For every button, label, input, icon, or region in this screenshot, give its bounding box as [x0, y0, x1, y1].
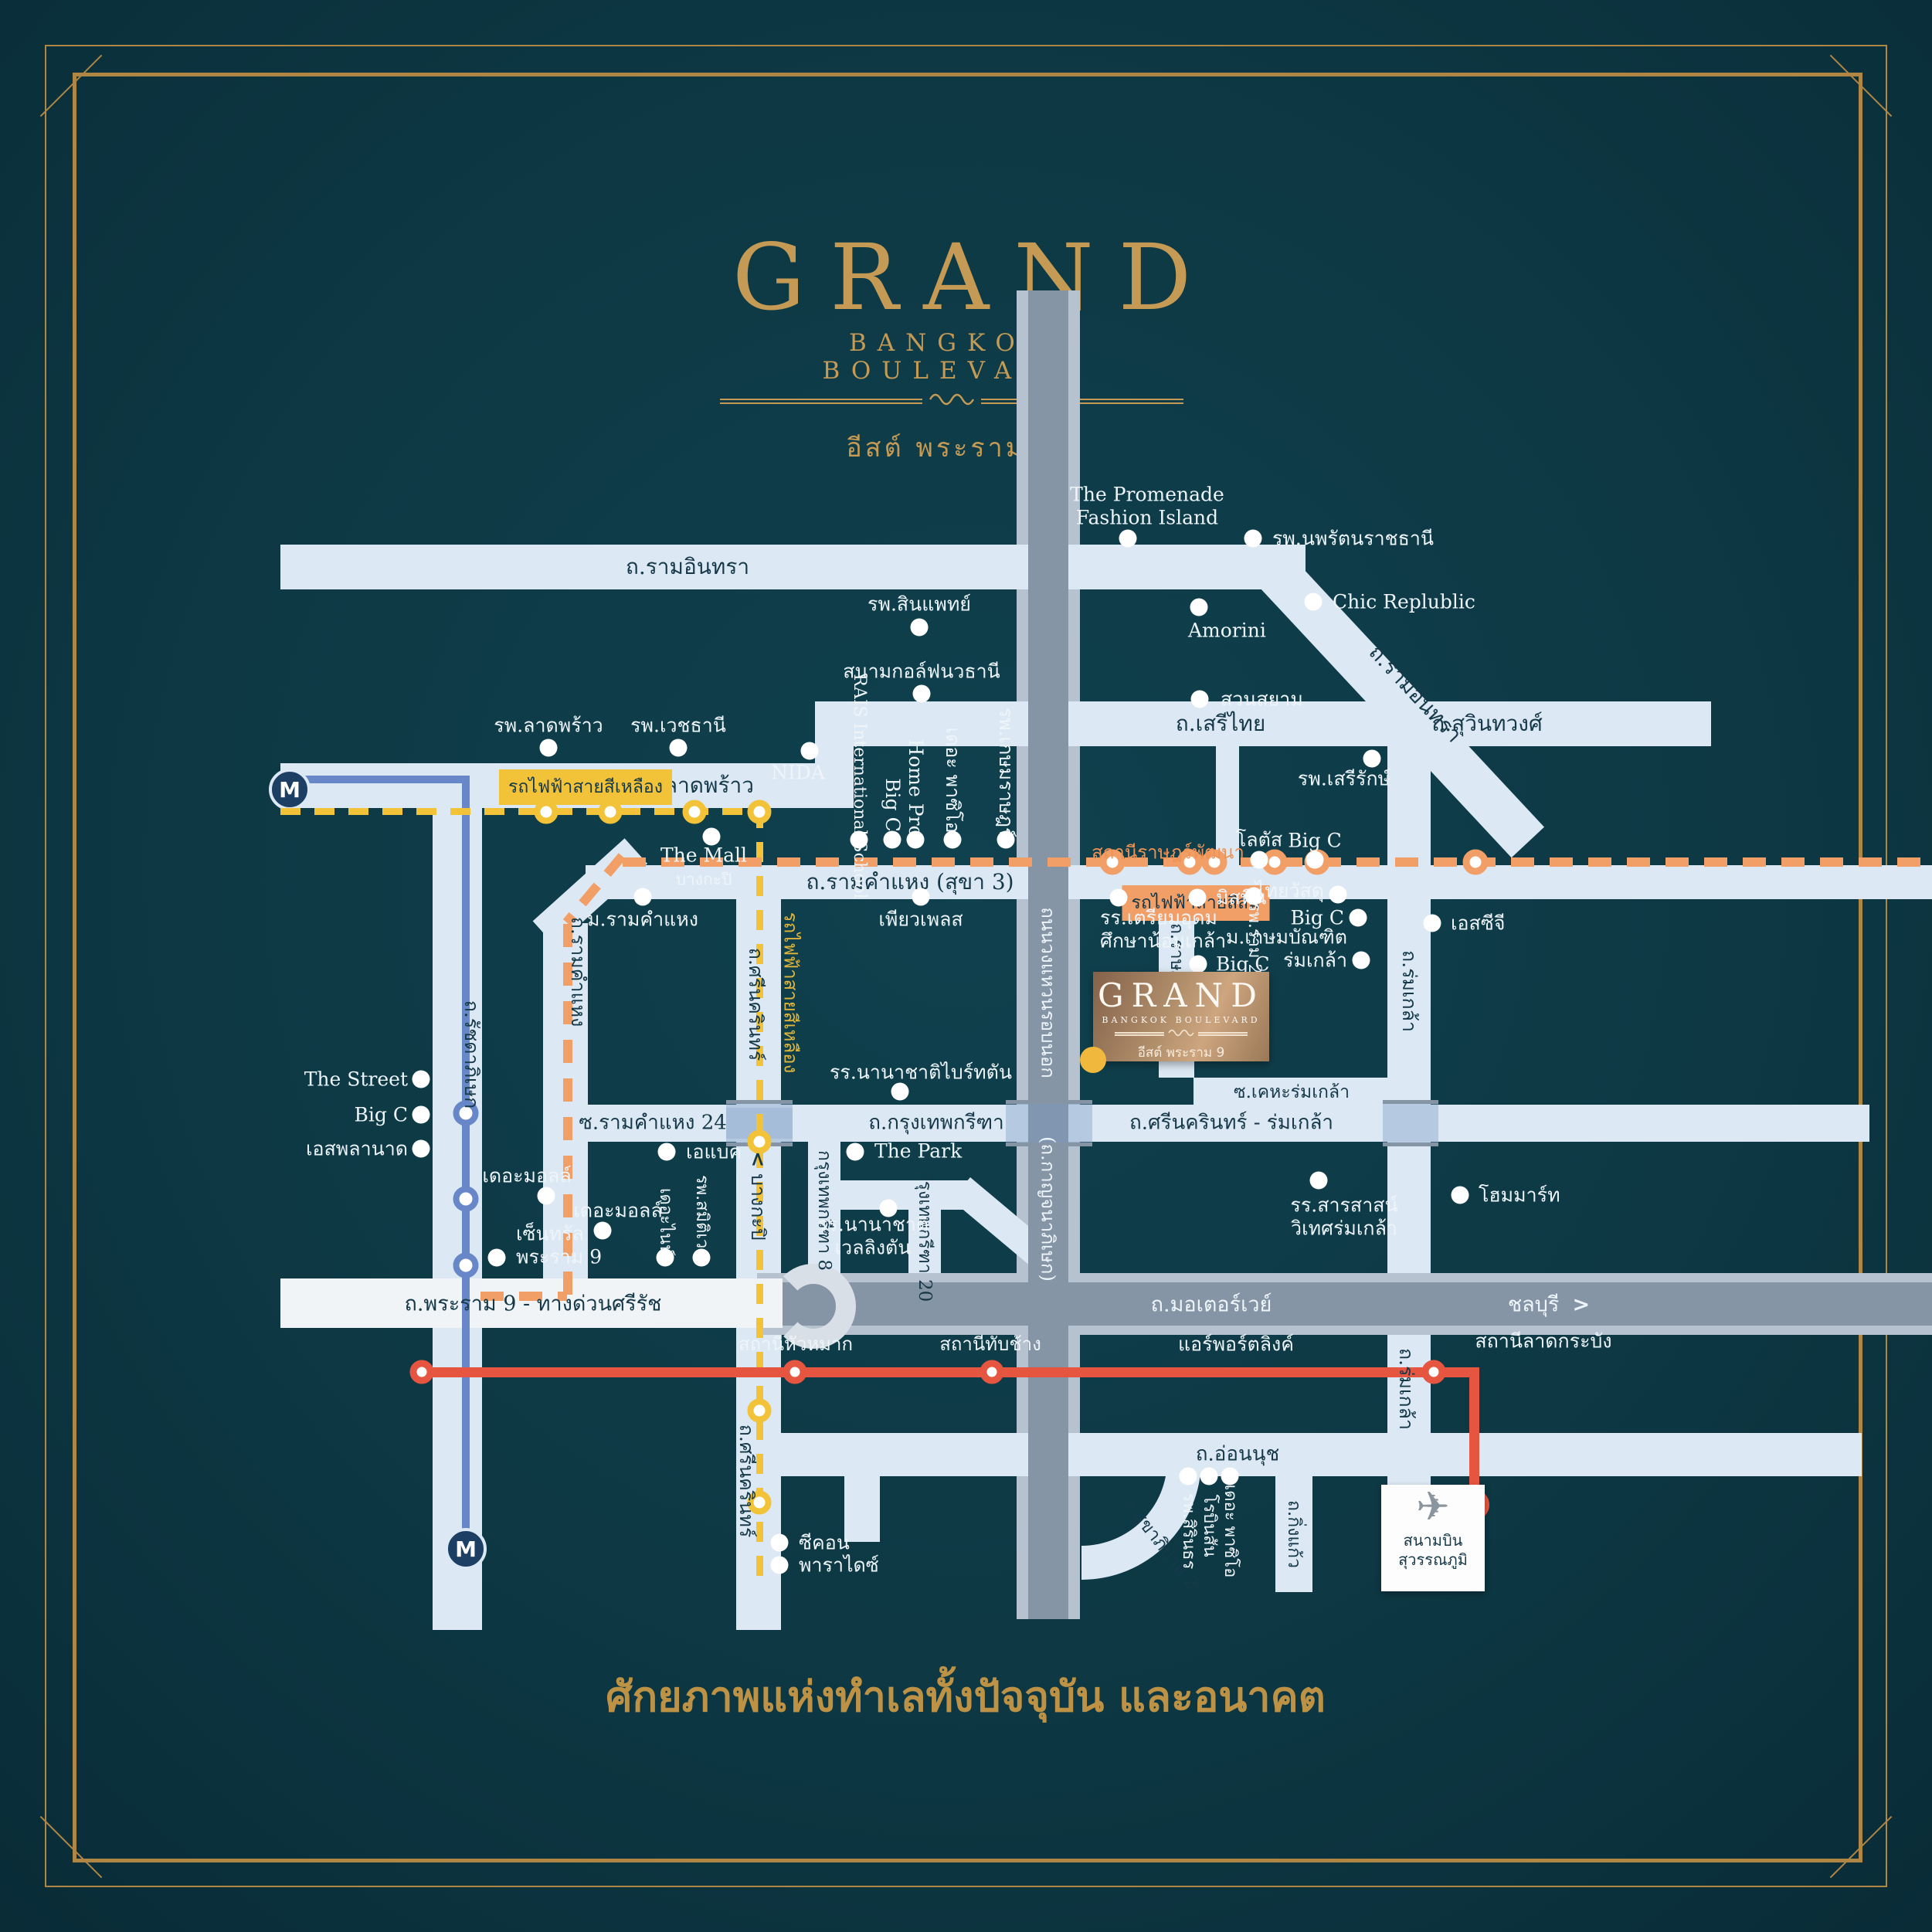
landmark-dot — [1221, 1468, 1239, 1486]
landmark-themall-bangkapi: The Mallบางกะปิ — [660, 844, 747, 890]
landmark-bigc-lotus: Big C — [1288, 829, 1341, 852]
landmark-themall1: เดอะมอลล์ — [482, 1164, 571, 1187]
landmark-samitivej: รพ.สมิติเวช — [691, 1175, 711, 1260]
landmark-dot — [413, 1106, 430, 1124]
landmark-dot — [1180, 1468, 1197, 1486]
orange-station-node — [1463, 850, 1489, 875]
ratphatthana-station-label: สถานีราษฎร์พัฒนา — [1092, 837, 1244, 868]
landmark-abac: เอแบค — [686, 1140, 742, 1163]
suvarnabhumi-airport-box: ✈ สนามบิน สุวรรณภูมิ — [1381, 1485, 1485, 1591]
landmark-themall2: เดอะมอลล์ — [573, 1199, 662, 1222]
road-ratchadaphisek — [433, 808, 482, 1630]
landmark-sirindhorn: รพ.สิรินธร — [1178, 1493, 1198, 1570]
landmark-dot — [1329, 886, 1347, 904]
landmark-esplanade: เอสพลานาด — [306, 1137, 408, 1160]
landmark-serirak: รพ.เสรีรักษ์ — [1298, 767, 1390, 790]
label-keha-romklao: ซ.เคหะร่มเกล้า — [1234, 1078, 1350, 1106]
chevron-up-icon: < — [747, 1151, 769, 1167]
label-krungthep-kreetha: ถ.กรุงเทพกรีฑา — [868, 1107, 1003, 1139]
label-serithai: ถ.เสรีไทย — [1176, 707, 1266, 741]
yellow-station-node — [683, 800, 707, 824]
landmark-dot — [1189, 889, 1207, 907]
landmark-triamudom: รร.เตรียมอุดม ศึกษาน้อมเกล้า — [1100, 907, 1226, 952]
label-srinakarin-s: ถ.ศรีนครินทร์ — [731, 1424, 762, 1538]
label-srinakarin-n: ถ.ศรีนครินทร์ — [740, 948, 771, 1061]
project-name: GRAND — [1093, 980, 1269, 1012]
landmark-thaiwatsadu: ไทยวัสดุ — [1255, 879, 1324, 902]
landmark-dot — [1363, 750, 1381, 768]
bridge-kreetha-romklao — [1383, 1100, 1438, 1146]
road-onnut — [780, 1433, 1862, 1476]
landmark-dot — [703, 828, 721, 846]
yellow-station-node — [748, 1130, 772, 1154]
project-location: อีสต์ พระราม 9 — [1093, 1042, 1269, 1063]
project-marker-box: GRAND BANGKOK BOULEVARD อีสต์ พระราม 9 — [1093, 972, 1269, 1061]
brand-logo: GRAND BANGKOK BOULEVARD อีสต์ พระราม 9 — [720, 232, 1183, 468]
landmark-dot — [1119, 530, 1137, 548]
landmark-dot — [1110, 889, 1128, 907]
landmark-dot — [801, 742, 819, 760]
road-onnut-stub — [844, 1476, 880, 1542]
label-ramintra: ถ.รามอินทรา — [626, 550, 749, 584]
landmark-dot — [880, 1200, 898, 1217]
landmark-wellington: รร.นานาชาติ เวลลิงตัน — [817, 1214, 929, 1259]
landmark-dot — [913, 685, 931, 703]
landmark-bigc-ratchada: Big C — [355, 1103, 408, 1126]
road-nida-connector — [815, 701, 854, 808]
landmark-suansiam: สวนสยาม — [1221, 688, 1303, 711]
landmark-hommart: โฮมมาร์ท — [1479, 1183, 1560, 1207]
location-map-poster: GRAND BANGKOK BOULEVARD อีสต์ พระราม 9 — [0, 0, 1932, 1932]
landmark-dot — [1190, 956, 1207, 973]
yellow-station-node — [748, 800, 772, 824]
mrt-line-horizontal — [290, 776, 467, 783]
airport-link-node — [410, 1360, 434, 1384]
airport-name: สนามบิน สุวรรณภูมิ — [1381, 1531, 1485, 1570]
label-ramkhamhaeng: ถ.รามคำแหง (สุขา 3) — [806, 865, 1014, 899]
mrt-icon-north: M — [269, 769, 311, 810]
mrt-icon-south: M — [445, 1528, 487, 1570]
landmark-robinson: โรบินสัน — [1199, 1494, 1219, 1557]
label-kingkaew: ถ.กิ่งแก้ว — [1280, 1500, 1308, 1568]
landmark-sinphaet: รพ.สินแพทย์ — [868, 593, 971, 616]
landmark-dot — [540, 739, 558, 757]
landmark-dot — [413, 1140, 430, 1158]
airport-link-node-latkrabang — [1422, 1360, 1446, 1384]
landmark-dot — [911, 619, 929, 637]
label-ratchadaphisek: ถ.รัชดาภิเษก — [456, 1000, 487, 1109]
airport-link-label: แอร์พอร์ตลิงค์ — [1178, 1333, 1294, 1356]
landmark-dot — [1200, 1468, 1218, 1486]
label-onnut: ถ.อ่อนนุช — [1196, 1438, 1279, 1470]
landmark-dot — [1310, 1172, 1328, 1190]
airport-link-vertical — [1469, 1367, 1479, 1499]
landmark-dot — [1190, 599, 1208, 616]
landmark-seacon: ซีคอน — [799, 1531, 850, 1554]
landmark-paradise: พาราไดซ์ — [799, 1553, 879, 1577]
mrt-station-node — [453, 1187, 479, 1212]
landmark-dot — [538, 1187, 555, 1205]
landmark-dot — [1191, 691, 1209, 708]
wave-icon — [929, 392, 975, 406]
landmark-dot — [634, 888, 652, 906]
landmark-thepark: The Park — [874, 1139, 962, 1163]
project-site-dot — [1080, 1047, 1106, 1073]
landmark-dot — [670, 739, 688, 757]
landmark-dot — [851, 831, 868, 849]
airport-link-node-thapchang — [980, 1360, 1004, 1384]
wave-icon — [1168, 1028, 1194, 1037]
landmark-dot — [891, 1083, 909, 1101]
frame-miter-br — [1830, 1816, 1893, 1879]
latkrabang-station-label: สถานีลาดกระบัง — [1475, 1329, 1611, 1353]
rule-line-left — [1115, 1032, 1164, 1034]
landmark-dot — [1244, 530, 1262, 548]
frame-miter-tl — [40, 55, 103, 117]
label-motorway: ถ.มอเตอร์เวย์ — [1151, 1288, 1272, 1321]
landmark-brighton: รร.นานาชาติไบร์ทตัน — [830, 1061, 1012, 1084]
airport-link-line — [422, 1367, 1479, 1377]
landmark-homepro: Home Pro — [904, 739, 927, 837]
project-tagline: BANGKOK BOULEVARD — [1093, 1015, 1269, 1025]
landmark-dot — [1350, 909, 1367, 927]
thapchang-station-label: สถานีทับช้าง — [939, 1333, 1041, 1355]
label-bangkapi-direction: < บางกะปิ — [742, 1151, 773, 1240]
landmark-nida: NIDA — [771, 761, 825, 784]
landmark-pureplace: เพียวเพลส — [878, 908, 963, 931]
label-ringroad: ถนนวงแหวนรอบนอก — [1034, 907, 1064, 1078]
landmark-dot — [657, 1249, 674, 1267]
landmark-dot — [488, 1249, 506, 1267]
chevron-right-icon: > — [1573, 1293, 1591, 1317]
landmark-dot — [1306, 851, 1324, 869]
landmark-bigc-ramkhamhaeng: Big C — [881, 778, 904, 831]
landmark-dot — [1353, 952, 1370, 969]
landmark-dot — [658, 1143, 676, 1161]
brand-rule — [720, 392, 1183, 406]
landmark-dot — [907, 831, 925, 849]
landmark-dot — [693, 1249, 711, 1267]
landmark-dot — [1452, 1187, 1469, 1204]
landmark-dot — [771, 1557, 789, 1574]
landmark-central-rama9: เซ็นทรัล พระราม 9 — [516, 1223, 602, 1268]
landmark-ram-university: ม.รามคำแหง — [587, 908, 698, 931]
road-ramintra — [280, 545, 1306, 589]
label-suwinthawong: ถ.สุวินทวงศ์ — [1431, 707, 1542, 741]
frame-miter-bl — [40, 1816, 103, 1879]
landmark-dot — [1305, 593, 1323, 611]
label-ramkhamhaeng-v: ถ.รามคำแหง — [562, 917, 593, 1027]
landmark-thestreet: The Street — [304, 1068, 408, 1091]
label-kanchanaphisek: (ถ.กาญจนาภิเษก) — [1034, 1136, 1064, 1282]
brand-tagline: BANGKOK BOULEVARD — [720, 329, 1183, 385]
footer-tagline: ศักยภาพแห่งทำเลทั้งปัจจุบัน และอนาคต — [606, 1663, 1326, 1730]
landmark-thenine: เดอะไนน์ — [655, 1188, 675, 1256]
landmark-dot — [944, 831, 962, 849]
landmark-scg: เอสซีจี — [1451, 912, 1505, 935]
airplane-icon: ✈ — [1381, 1485, 1485, 1531]
landmark-latphrao-hospital: รพ.ลาดพร้าว — [494, 714, 603, 737]
rule-line-right — [1198, 1032, 1248, 1034]
landmark-chic: Chic Replublic — [1333, 590, 1475, 613]
mrt-station-node — [453, 1253, 479, 1278]
landmark-rais: RAIS International School — [849, 674, 869, 898]
landmark-paseo-onnut: เดอะ พาซิโอ — [1220, 1485, 1240, 1578]
landmark-paseo-ramkhamhaeng: เดอะ พาซิโอ — [941, 727, 964, 833]
huamak-station-label: สถานีหัวหมาก — [739, 1333, 853, 1355]
frame-miter-tr — [1830, 55, 1893, 117]
landmark-noparat: รพ.นพรัตนราชธานี — [1272, 527, 1434, 550]
landmark-dot — [884, 831, 901, 849]
landmark-dot — [997, 831, 1015, 849]
brand-name: GRAND — [732, 232, 1183, 323]
landmark-dot — [912, 888, 930, 906]
landmark-vejthani: รพ.เวชธานี — [630, 714, 726, 737]
label-rama9: ถ.พระราม 9 - ทางด่วนศรีรัช — [404, 1287, 661, 1320]
landmark-sarasas: รร.สารสาสน์ วิเทศร่มเกล้า — [1290, 1194, 1397, 1240]
brand-location: อีสต์ พระราม 9 — [720, 426, 1183, 468]
landmark-amorini: Amorini — [1188, 619, 1266, 642]
label-ram24: ซ.รามคำแหง 24 — [579, 1107, 727, 1139]
label-chonburi: ชลบุรี > — [1508, 1288, 1590, 1321]
yellow-station-node — [748, 1399, 772, 1423]
landmark-kasemrad: รพ.เกษมราษฎร์ — [994, 708, 1017, 838]
landmark-dot — [1251, 851, 1268, 869]
landmark-lotus: โลตัส — [1236, 828, 1282, 851]
label-romklao-s: ถ.ร่มเกล้า — [1390, 1348, 1421, 1430]
project-rule — [1093, 1028, 1269, 1037]
mrt-line-vertical — [462, 776, 470, 1551]
yellow-line-badge: รถไฟฟ้าสายสีเหลือง — [499, 769, 672, 805]
landmark-dot — [1424, 915, 1441, 932]
landmark-dot — [771, 1534, 789, 1552]
rule-line-right — [981, 399, 1183, 400]
landmark-dot — [413, 1071, 430, 1088]
airport-link-node-huamak — [783, 1360, 807, 1384]
rule-line-left — [720, 399, 922, 400]
landmark-promenade: The Promenade Fashion Island — [1070, 484, 1224, 529]
yellow-line-vertical-label: รถไฟฟ้าสายสีเหลือง — [776, 912, 806, 1074]
landmark-dot — [847, 1143, 864, 1161]
label-romklao-n: ถ.ร่มเกล้า — [1394, 950, 1424, 1032]
label-srinakarin-romklao: ถ.ศรีนครินทร์ - ร่มเกล้า — [1129, 1107, 1333, 1139]
